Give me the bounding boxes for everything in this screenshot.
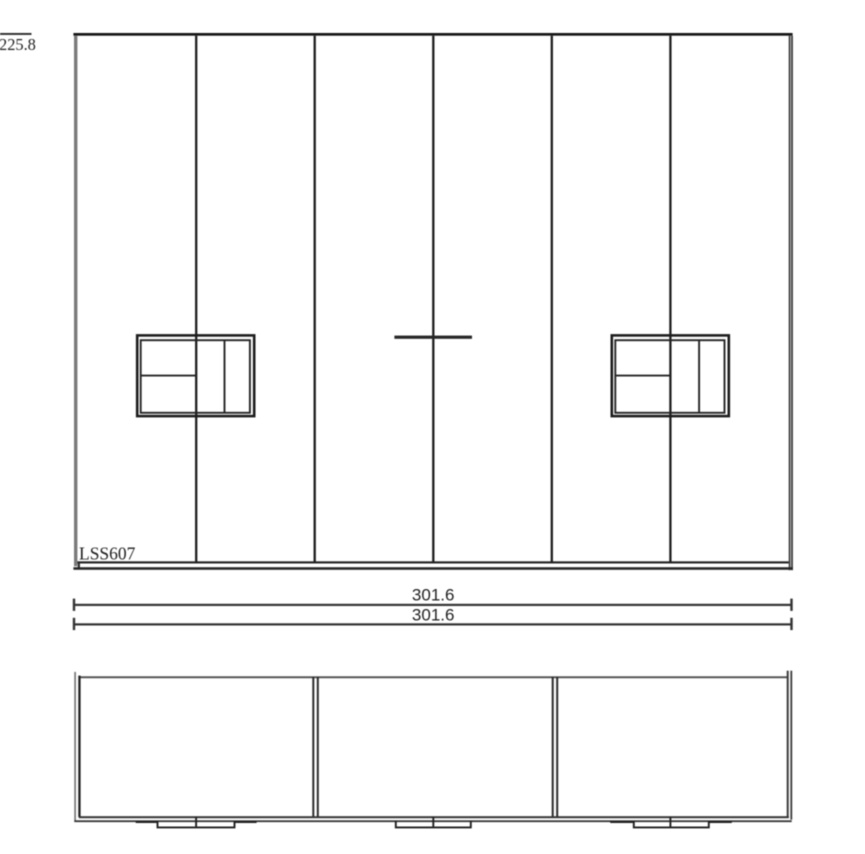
svg-text:225.8: 225.8 <box>0 35 36 54</box>
svg-text:LSS607: LSS607 <box>79 544 136 564</box>
svg-text:301.6: 301.6 <box>412 606 455 625</box>
svg-text:301.6: 301.6 <box>412 585 455 604</box>
